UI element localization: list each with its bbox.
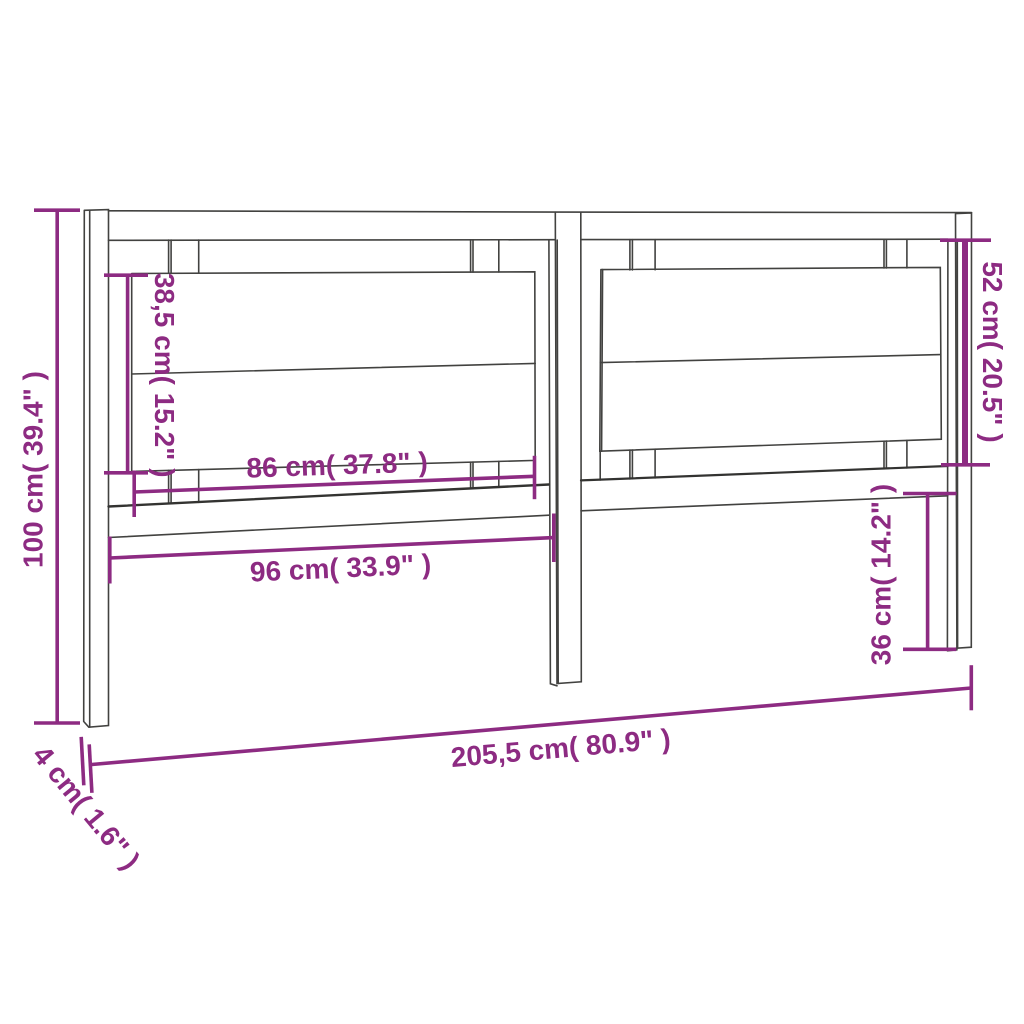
svg-text:36 cm( 14.2" ): 36 cm( 14.2" ) [866, 484, 897, 665]
svg-text:38,5 cm( 15.2" ): 38,5 cm( 15.2" ) [149, 273, 180, 478]
svg-text:86 cm( 37.8" ): 86 cm( 37.8" ) [246, 446, 428, 483]
svg-text:52 cm( 20.5" ): 52 cm( 20.5" ) [977, 261, 1008, 442]
svg-text:100 cm( 39.4" ): 100 cm( 39.4" ) [18, 371, 49, 568]
